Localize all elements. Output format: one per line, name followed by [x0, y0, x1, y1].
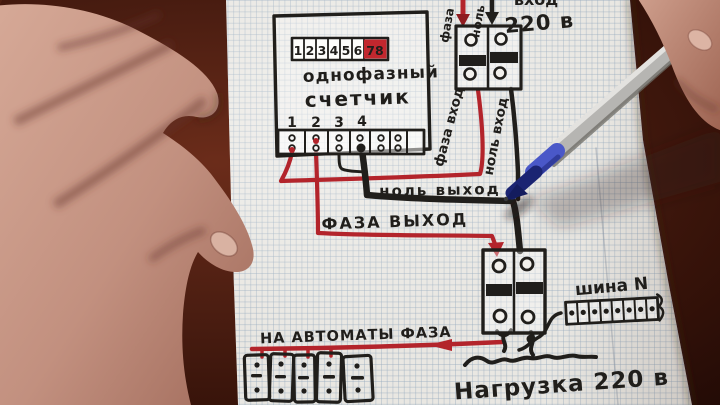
display-red-digits: 78	[366, 43, 383, 58]
n-bus-label: шина N	[574, 274, 649, 300]
input-caption-top: вход	[514, 0, 558, 9]
meter-name-line2: счетчик	[304, 84, 411, 112]
breaker-toggle-band	[490, 52, 518, 63]
feed-neutral-arrowhead	[485, 12, 499, 25]
video-frame: { "scene_title": "hand-drawn single-phas…	[0, 0, 720, 405]
terminal-number: 4	[357, 114, 367, 130]
meter: 1 2 3 4 5 6 78 однофазный счетчик 1 2 3 …	[274, 12, 439, 156]
display-digit: 3	[318, 43, 327, 58]
load-hook-left-stem	[503, 334, 505, 351]
neutral-in-label: ноль вход	[481, 96, 512, 177]
display-digit: 4	[330, 43, 339, 58]
terminal4-connection-blob	[357, 144, 366, 153]
terminal2-red-dot	[313, 138, 319, 144]
scene-overlay: 1 2 3 4 5 6 78 однофазный счетчик 1 2 3 …	[0, 0, 720, 405]
terminal1-red-dot	[289, 147, 295, 153]
pen-ball-point	[504, 197, 508, 201]
breaker-toggle-band	[486, 284, 512, 296]
automat-box	[244, 355, 270, 401]
breaker-toggle-band	[516, 282, 543, 294]
load-squiggle	[465, 356, 596, 365]
display-digit: 1	[294, 43, 303, 58]
display-digit: 5	[342, 43, 351, 58]
neutral-out-label: ноль выход	[379, 180, 501, 200]
breaker-toggle-band	[459, 55, 486, 66]
phase-out-label: ФАЗА ВЫХОД	[321, 209, 468, 233]
load-breaker	[483, 250, 545, 333]
display-digit: 2	[306, 43, 315, 58]
left-hand	[0, 4, 254, 405]
load-label: Нагрузка 220 в	[453, 365, 670, 405]
phase-in-label: фаза вход	[431, 85, 468, 168]
input-caption-voltage: 220 в	[504, 8, 575, 38]
display-digit: 6	[354, 43, 363, 58]
feed-phase-label: фаза	[437, 7, 457, 44]
